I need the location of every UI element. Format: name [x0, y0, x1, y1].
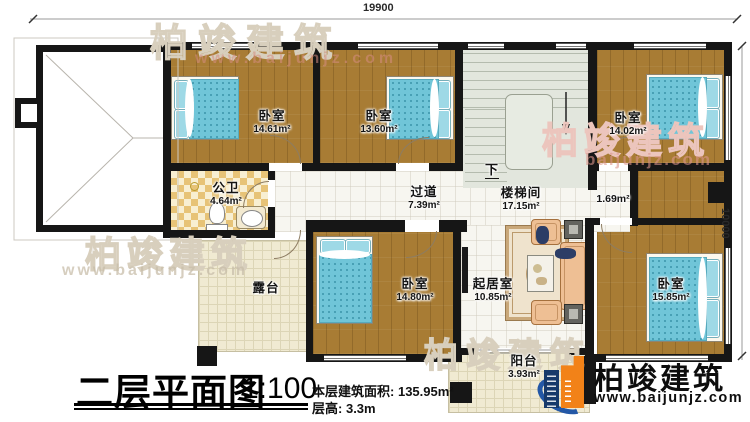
logo-website: www.baijunjz.com	[594, 390, 743, 406]
wall	[36, 45, 43, 232]
room-label-bedroom5: 卧室15.85m²	[652, 277, 689, 304]
window	[324, 355, 406, 361]
door-opening	[269, 163, 302, 171]
wall	[36, 45, 168, 52]
wall	[36, 225, 168, 232]
window	[556, 43, 586, 49]
dimension-right-label: 10000	[719, 208, 731, 239]
wall	[453, 348, 475, 355]
window	[634, 43, 706, 49]
wall	[163, 230, 275, 238]
wall	[313, 49, 320, 171]
window	[468, 43, 504, 49]
wall	[306, 220, 313, 362]
door-opening	[599, 163, 628, 171]
room-label-closet: 1.69m²	[596, 193, 629, 206]
window	[725, 76, 731, 160]
room-label-bedroom4: 卧室14.80m²	[396, 277, 433, 304]
wall	[585, 218, 594, 362]
room-label-bedroom2: 卧室13.60m²	[360, 109, 397, 136]
door-opening	[396, 163, 429, 171]
door-opening	[268, 180, 275, 207]
logo: 柏竣建筑 www.baijunjz.com	[538, 352, 748, 416]
floor-plan-canvas: 柏竣建筑 www.baijunjz.com 柏竣建筑 www.baijunjz.…	[0, 0, 750, 422]
room-label-living: 起居室10.85m²	[473, 277, 514, 304]
dimension-top-label: 19900	[363, 2, 394, 14]
room-label-bedroom3: 卧室14.02m²	[609, 111, 646, 138]
room-label-terrace: 露台	[252, 281, 279, 296]
wall	[163, 42, 171, 238]
window	[725, 248, 731, 344]
wall	[455, 49, 463, 171]
logo-icon	[538, 354, 592, 416]
window	[192, 43, 254, 49]
column	[450, 382, 472, 403]
stair-direction-label: 下	[485, 162, 499, 179]
room-label-corridor: 过道7.39m²	[408, 185, 440, 212]
chimney-core	[21, 104, 37, 122]
room-label-bedroom1: 卧室14.61m²	[253, 109, 290, 136]
column	[197, 346, 217, 366]
room-label-stairwell: 楼梯间17.15m²	[501, 186, 542, 213]
wall-pier	[708, 182, 732, 203]
room-label-balcony: 阳台3.93m²	[508, 354, 540, 381]
wall	[306, 220, 467, 232]
window	[358, 43, 438, 49]
wall	[453, 220, 461, 355]
room-label-bathroom: 公卫4.64m²	[210, 181, 242, 208]
